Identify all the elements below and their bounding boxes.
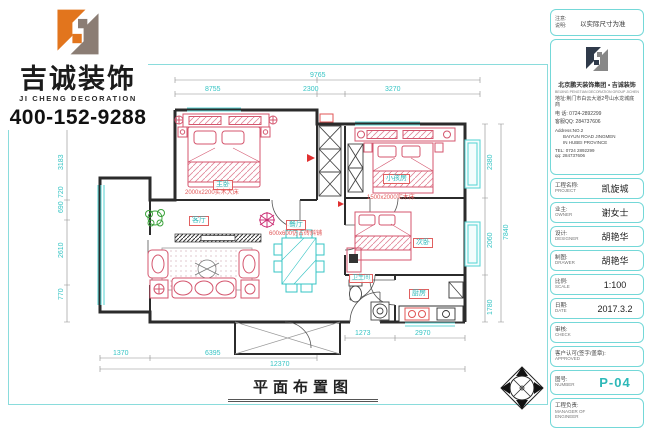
field-owner-value: 谢女士 [591,206,639,219]
field-designer: 设计: DESIGNER 胡艳华 [550,226,644,247]
field-owner: 业主: OWNER 谢女士 [550,202,644,223]
dim-bottom-a: 1370 [113,350,129,357]
field-date-label-en: DATE [555,309,591,314]
title-block: 注意: 说明: 以实际尺寸为准 北京鹏天装饰集团 • 吉诚装饰 BEIJING … [550,9,644,431]
bathroom-fixtures [349,280,389,320]
field-drawer: 制图: DRAWER 胡艳华 [550,250,644,271]
annotation-master-bed: 2000x2200实木大床 [185,190,239,196]
plant-green [146,210,165,227]
dim-left-d: 2610 [58,242,65,258]
room-label-dining: 餐厅 [286,220,306,230]
company-qq-en: qq: 284737606 [555,153,639,159]
dim-bottom-c: 1273 [355,330,371,337]
company-qq: 客服QQ: 284737606 [555,119,639,125]
field-drawer-label-en: DRAWER [555,261,591,266]
second-bedroom-furniture [347,212,411,272]
field-owner-label-en: OWNER [555,213,591,218]
drawing-number-label-en: NUMBER [555,383,591,388]
field-drawer-value: 胡艳华 [591,254,639,267]
field-check: 审核: CHECK [550,322,644,343]
note-text: 以实际尺寸为准 [566,18,639,28]
master-bedroom-furniture [175,114,277,187]
annotation-kids-bed: 1500x2000实木床 [367,195,415,201]
brand-name-en: JI CHENG DECORATION [8,94,148,103]
dining-furniture [274,230,324,292]
kitchen-fixtures [399,282,463,322]
manager-label-en-2: ENGINEER [555,414,639,419]
field-approved: 客户认可(签字/盖章): APPROVED [550,346,644,367]
living-room-furniture [148,234,261,298]
dim-left-a: 3183 [58,154,65,170]
drawing-sheet: 吉诚装饰 JI CHENG DECORATION 400-152-9288 [0,0,650,433]
dim-top-total: 9765 [310,72,326,79]
field-scale-label-en: SCALE [555,285,591,290]
dim-right-a: 2380 [487,154,494,170]
brand-block: 吉诚装饰 JI CHENG DECORATION 400-152-9288 [8,4,148,130]
field-manager: 工程负责: MANAGER OF ENGINEER [550,398,644,428]
company-logo-icon [50,4,106,60]
dim-top-b: 2300 [303,86,319,93]
dim-top-a: 8755 [205,86,221,93]
dim-right-d: 7840 [503,224,510,240]
dim-bottom-d: 2970 [415,330,431,337]
phone-number: 400-152-9288 [8,106,148,130]
manager-label: 工程负责: [555,401,639,409]
plant-magenta [259,212,275,228]
field-date: 日期: DATE 2017.3.2 [550,298,644,319]
field-scale-value: 1:100 [591,280,639,290]
company-address-en-3: IN HUBEI PROVINCE [555,140,639,146]
dim-left-e: 770 [58,288,65,300]
dim-left-c: 690 [58,201,65,213]
note-label-1: 注意: [555,16,566,23]
dim-left-b: 720 [58,186,65,198]
room-label-second: 次卧 [413,238,433,248]
field-project-label-en: PROJECT [555,189,591,194]
company-box: 北京鹏天装饰集团 • 吉诚装饰 BEIJING PENGTIAN DECORAT… [550,39,644,175]
dim-bottom-total: 12370 [270,361,289,368]
room-label-kids: 小孩房 [383,174,410,184]
drawing-number-value: P-04 [591,375,639,390]
field-project-value: 凯旋城 [591,182,639,195]
field-designer-value: 胡艳华 [591,230,639,243]
company-group-name-en: BEIJING PENGTIAN DECORATION GROUP JICHEN… [555,90,639,94]
company-logo-small-icon [582,44,612,74]
field-date-value: 2017.3.2 [591,304,639,314]
company-phone: 电 话: 0724-2892299 [555,111,639,117]
room-label-master: 主卧 [213,180,233,190]
field-check-label-en: CHECK [555,333,591,338]
company-address: 地址:荆门市白云大道2号山水龙城底商 [555,96,639,109]
company-group-name: 北京鹏天装饰集团 • 吉诚装饰 [555,80,639,89]
room-label-bath: 卫生间 [349,274,373,283]
room-label-kitchen: 厨房 [409,289,429,299]
field-drawing-number: 图号: NUMBER P-04 [550,370,644,395]
plan-title: 平面布置图 [228,376,378,402]
balcony-brace [235,322,340,354]
compass-icon [500,366,544,410]
field-approved-label-en: APPROVED [555,357,639,362]
brand-name: 吉诚装饰 [8,65,148,93]
field-project: 工程名称: PROJECT 凯旋城 [550,178,644,199]
note-box: 注意: 说明: 以实际尺寸为准 [550,9,644,36]
dim-right-b: 2060 [487,232,494,248]
note-label-2: 说明: [555,23,566,30]
field-designer-label-en: DESIGNER [555,237,591,242]
dim-right-c: 1780 [487,299,494,315]
annotation-dining-floor: 600x600仿古砖斜铺 [269,231,322,237]
dim-top-c: 3270 [385,86,401,93]
room-label-living: 客厅 [189,216,209,226]
field-scale: 比例: SCALE 1:100 [550,274,644,295]
dim-bottom-b: 6395 [205,350,221,357]
